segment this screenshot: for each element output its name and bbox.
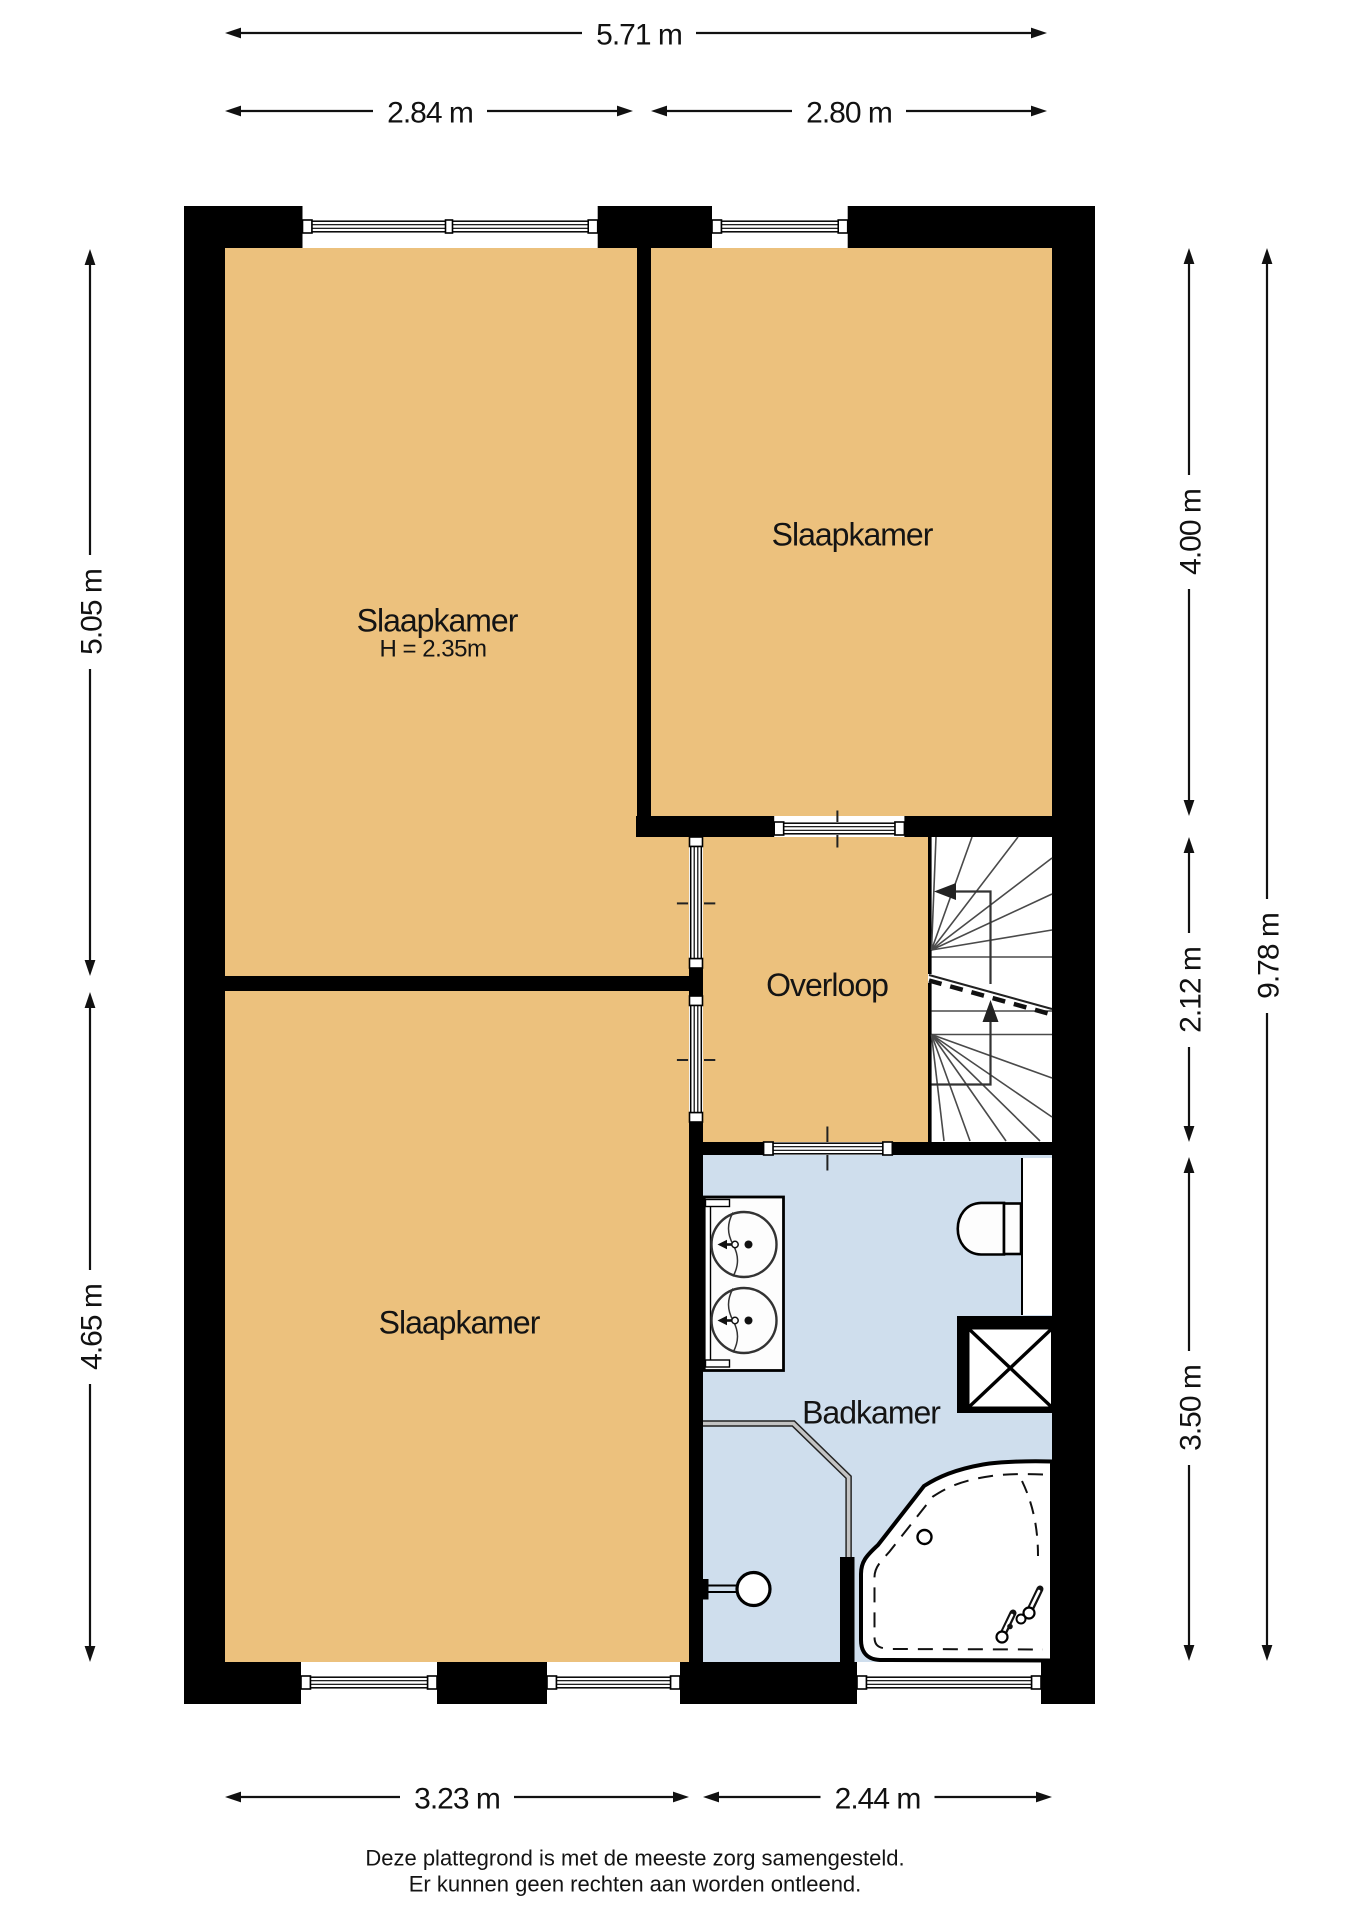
svg-text:Er kunnen geen rechten aan wor: Er kunnen geen rechten aan worden ontlee… [409, 1872, 862, 1897]
svg-text:4.65 m: 4.65 m [75, 1284, 108, 1370]
svg-text:2.44 m: 2.44 m [835, 1782, 921, 1815]
svg-text:Slaapkamer: Slaapkamer [357, 603, 519, 639]
svg-text:Slaapkamer: Slaapkamer [772, 517, 934, 553]
svg-text:5.71 m: 5.71 m [596, 18, 682, 51]
svg-text:2.80 m: 2.80 m [806, 96, 892, 129]
svg-text:2.84 m: 2.84 m [387, 96, 473, 129]
svg-text:3.23 m: 3.23 m [414, 1782, 500, 1815]
svg-text:Badkamer: Badkamer [802, 1395, 941, 1431]
svg-text:2.12 m: 2.12 m [1174, 947, 1207, 1033]
svg-text:9.78 m: 9.78 m [1252, 913, 1285, 999]
svg-text:4.00 m: 4.00 m [1174, 489, 1207, 575]
svg-text:H = 2.35m: H = 2.35m [380, 636, 487, 663]
svg-text:3.50 m: 3.50 m [1174, 1365, 1207, 1451]
svg-text:Deze plattegrond is met de mee: Deze plattegrond is met de meeste zorg s… [365, 1846, 904, 1871]
svg-text:Slaapkamer: Slaapkamer [379, 1305, 541, 1341]
svg-text:5.05 m: 5.05 m [75, 569, 108, 655]
svg-text:Overloop: Overloop [766, 967, 888, 1003]
